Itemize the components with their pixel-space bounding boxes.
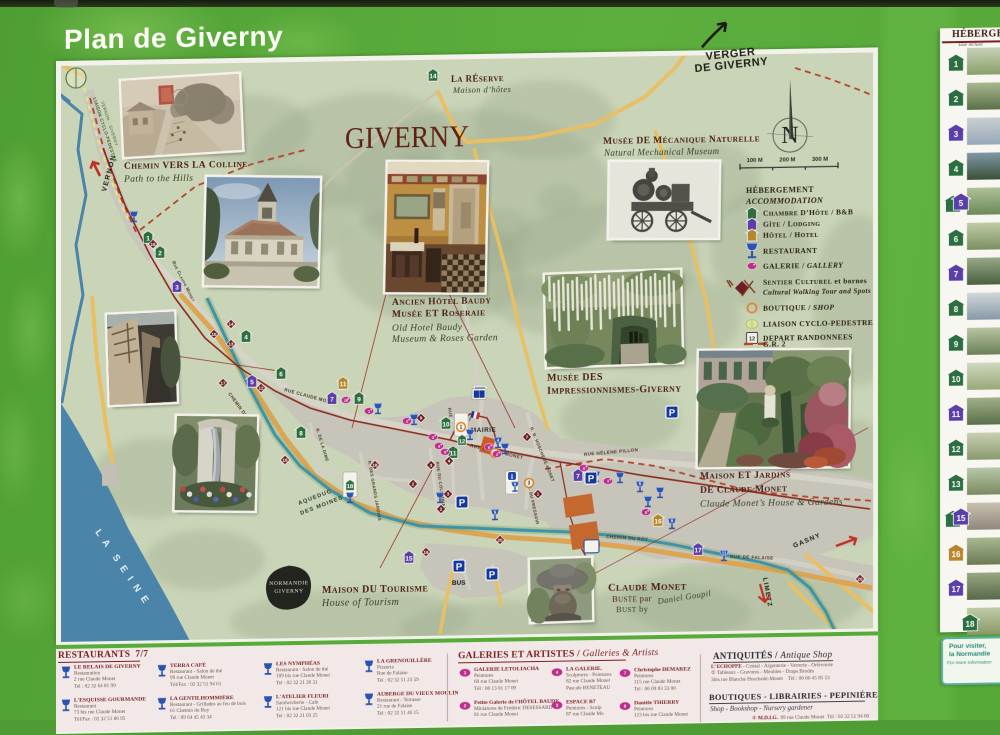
svg-text:LIAISON CYCLO-PEDESTRE: LIAISON CYCLO-PEDESTRE xyxy=(763,318,873,329)
svg-text:Old Hotel Baudy: Old Hotel Baudy xyxy=(392,323,463,334)
svg-text:G.R. 2: G.R. 2 xyxy=(763,340,786,349)
svg-text:BOUTIQUE / SHOP: BOUTIQUE / SHOP xyxy=(763,303,834,313)
svg-text:2: 2 xyxy=(158,250,162,257)
svg-text:11: 11 xyxy=(340,381,347,388)
svg-text:16: 16 xyxy=(952,550,961,559)
svg-text:MUSÉE DES: MUSÉE DES xyxy=(547,372,603,384)
svg-text:7: 7 xyxy=(330,397,334,404)
svg-text:18: 18 xyxy=(347,484,353,490)
svg-text:8: 8 xyxy=(299,430,303,437)
svg-text:HÉBERGEMENT: HÉBERGEMENT xyxy=(746,184,814,195)
svg-text:6: 6 xyxy=(279,371,283,378)
svg-text:18: 18 xyxy=(372,463,378,468)
svg-text:Path to the Hills: Path to the Hills xyxy=(123,174,193,185)
svg-text:200 M: 200 M xyxy=(779,157,795,163)
svg-text:RESTAURANT: RESTAURANT xyxy=(763,246,817,256)
svg-text:12: 12 xyxy=(258,386,264,391)
svg-text:17: 17 xyxy=(220,381,226,386)
svg-text:2: 2 xyxy=(412,482,415,487)
svg-text:P: P xyxy=(459,498,466,509)
svg-text:BUS: BUS xyxy=(452,580,466,587)
svg-text:P: P xyxy=(588,474,595,485)
svg-text:3: 3 xyxy=(528,481,531,487)
svg-text:7: 7 xyxy=(576,473,580,480)
svg-text:8: 8 xyxy=(954,305,959,314)
svg-text:1: 1 xyxy=(954,60,959,69)
svg-text:5: 5 xyxy=(250,379,254,386)
svg-text:7: 7 xyxy=(526,435,529,440)
svg-text:13: 13 xyxy=(228,342,234,347)
svg-text:2: 2 xyxy=(954,95,959,104)
svg-text:17: 17 xyxy=(694,547,702,554)
svg-text:6: 6 xyxy=(954,235,959,244)
svg-text:9: 9 xyxy=(357,396,361,403)
svg-text:17: 17 xyxy=(952,585,961,594)
svg-text:13: 13 xyxy=(952,480,961,489)
svg-text:P: P xyxy=(456,562,463,573)
svg-text:18: 18 xyxy=(966,620,975,629)
svg-text:16: 16 xyxy=(150,242,156,247)
svg-text:16: 16 xyxy=(654,518,662,525)
svg-text:House of Tourism: House of Tourism xyxy=(321,597,399,609)
svg-text:20: 20 xyxy=(857,577,863,582)
svg-text:1: 1 xyxy=(460,425,463,431)
svg-text:15: 15 xyxy=(405,555,413,562)
svg-text:19: 19 xyxy=(423,550,429,555)
svg-text:MAIRIE: MAIRIE xyxy=(471,427,496,434)
svg-text:P: P xyxy=(669,408,676,419)
svg-text:9: 9 xyxy=(420,416,423,421)
svg-text:Museum & Roses Garden: Museum & Roses Garden xyxy=(391,333,498,345)
svg-text:BUSTE par: BUSTE par xyxy=(612,593,652,604)
svg-text:11: 11 xyxy=(722,551,727,556)
svg-text:P: P xyxy=(489,570,496,581)
svg-text:11: 11 xyxy=(952,410,961,419)
svg-text:18: 18 xyxy=(282,458,288,463)
svg-text:4: 4 xyxy=(244,334,248,341)
svg-text:BUST by: BUST by xyxy=(616,603,649,614)
svg-text:11: 11 xyxy=(450,450,457,457)
svg-text:4: 4 xyxy=(448,459,451,464)
svg-text:10: 10 xyxy=(344,398,349,403)
svg-text:100 M: 100 M xyxy=(747,158,763,164)
svg-text:GIVERNY: GIVERNY xyxy=(345,118,469,155)
svg-text:20: 20 xyxy=(497,538,503,543)
svg-text:ACCOMMODATION: ACCOMMODATION xyxy=(745,196,824,206)
svg-text:NORMANDIE: NORMANDIE xyxy=(269,580,309,587)
svg-text:1: 1 xyxy=(537,492,540,497)
svg-text:15: 15 xyxy=(957,514,966,523)
svg-text:9: 9 xyxy=(954,340,959,349)
svg-text:GIVERNY: GIVERNY xyxy=(274,588,303,594)
svg-text:5: 5 xyxy=(959,199,964,208)
svg-text:Natural Mechanical Museum: Natural Mechanical Museum xyxy=(603,146,720,158)
svg-text:3: 3 xyxy=(447,492,450,497)
svg-text:12: 12 xyxy=(749,336,755,342)
svg-text:4: 4 xyxy=(954,165,959,174)
svg-text:GALERIE / GALLERY: GALERIE / GALLERY xyxy=(763,261,844,271)
svg-text:3: 3 xyxy=(954,130,959,139)
svg-text:3: 3 xyxy=(175,284,179,291)
svg-text:10: 10 xyxy=(952,375,961,384)
svg-text:300 M: 300 M xyxy=(812,157,828,163)
svg-text:14: 14 xyxy=(228,322,234,327)
svg-text:12: 12 xyxy=(952,445,961,454)
svg-text:10: 10 xyxy=(442,421,450,428)
svg-text:14: 14 xyxy=(429,73,437,80)
svg-text:Maison d’hôtes: Maison d’hôtes xyxy=(452,84,512,95)
svg-text:3: 3 xyxy=(430,463,433,468)
svg-text:7: 7 xyxy=(954,270,959,279)
svg-text:15: 15 xyxy=(211,332,217,337)
svg-text:12: 12 xyxy=(459,439,465,445)
svg-text:2: 2 xyxy=(440,507,443,512)
